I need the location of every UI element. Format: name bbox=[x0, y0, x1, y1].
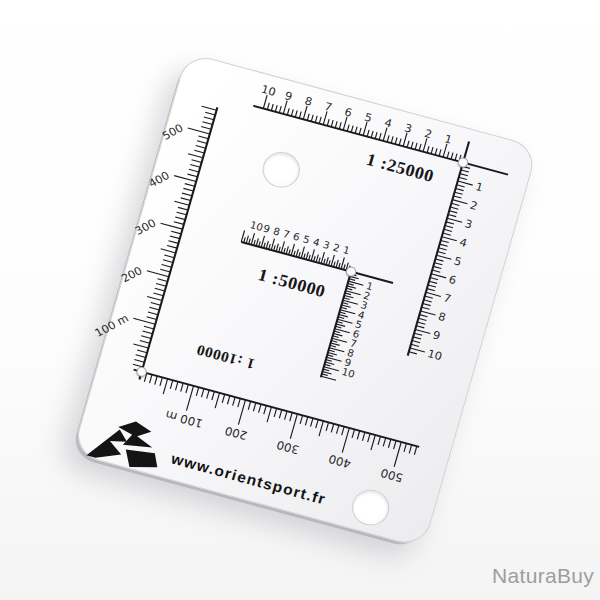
ruler-tick bbox=[421, 311, 436, 315]
ruler-tick bbox=[238, 400, 245, 425]
ruler-tick bbox=[174, 201, 189, 205]
ruler-tick bbox=[300, 415, 302, 424]
ruler-tick bbox=[415, 329, 430, 333]
ruler-tick bbox=[186, 386, 193, 411]
ruler-tick bbox=[378, 436, 380, 445]
ruler-tick bbox=[307, 114, 309, 121]
ruler-tick bbox=[279, 106, 281, 113]
ruler-tick bbox=[419, 144, 421, 151]
ruler-tick bbox=[295, 110, 297, 117]
ruler-tick bbox=[347, 125, 349, 132]
ruler-tick bbox=[161, 249, 176, 253]
tick-number: 2 bbox=[332, 242, 341, 254]
ruler-tick bbox=[137, 350, 147, 353]
tick-number: 6 bbox=[343, 106, 353, 120]
ruler-tick bbox=[387, 135, 389, 142]
ruler-tick bbox=[147, 317, 157, 320]
ruler-tick bbox=[415, 143, 417, 150]
ruler-tick bbox=[215, 393, 219, 408]
ruler-tick bbox=[352, 429, 354, 438]
ruler-tick bbox=[181, 383, 183, 392]
ruler-tick bbox=[347, 286, 356, 288]
ruler-tick bbox=[153, 293, 163, 296]
ruler-tick bbox=[167, 245, 177, 248]
ruler-tick bbox=[336, 425, 338, 434]
ruler-tick bbox=[336, 260, 338, 268]
ruler-tick bbox=[407, 141, 409, 148]
tick-number: 7 bbox=[442, 292, 452, 306]
ruler-tick bbox=[316, 255, 318, 263]
product-photo-background: 1098765432112345678910109876543211234567… bbox=[0, 0, 600, 600]
ruler-tick bbox=[451, 203, 459, 205]
ruler-tick bbox=[411, 142, 413, 149]
ruler-tick bbox=[449, 211, 457, 213]
ruler-tick bbox=[149, 307, 159, 310]
ruler-tick bbox=[394, 442, 401, 467]
ruler-tick bbox=[198, 136, 208, 139]
tick-number: 1 bbox=[443, 133, 453, 147]
ruler-tick bbox=[290, 414, 297, 439]
ruler-tick bbox=[175, 217, 185, 220]
ruler-tick bbox=[447, 152, 449, 159]
ruler-tick bbox=[202, 106, 217, 110]
ruler-tick bbox=[426, 292, 441, 296]
tick-number: 3 bbox=[403, 122, 413, 136]
ruler-tick bbox=[351, 126, 353, 133]
tick-number: 300 bbox=[275, 438, 301, 457]
ruler-tick bbox=[423, 303, 431, 305]
tick-number: 7 bbox=[323, 100, 333, 114]
ruler-tick bbox=[457, 185, 465, 187]
ruler-tick bbox=[417, 322, 425, 324]
ruler-tick bbox=[316, 420, 318, 429]
ruler-tick bbox=[444, 229, 452, 231]
ruler-tick bbox=[264, 405, 266, 414]
ruler-tick bbox=[442, 237, 457, 241]
ruler-tick bbox=[331, 120, 333, 127]
ruler-tick bbox=[339, 122, 341, 129]
ruler-tick bbox=[155, 376, 157, 385]
ruler-tick bbox=[431, 147, 433, 154]
ruler-tick bbox=[136, 355, 146, 358]
ruler-tick bbox=[267, 103, 269, 110]
ruler-tick bbox=[326, 257, 328, 265]
ruler-tick bbox=[429, 281, 437, 283]
ruler-tick bbox=[222, 394, 224, 403]
tick-number: 8 bbox=[303, 95, 313, 109]
ruler-tick bbox=[439, 149, 441, 156]
ruler-tick bbox=[367, 130, 369, 137]
ruler-tick bbox=[181, 198, 191, 201]
ruler-tick bbox=[150, 375, 152, 384]
ruler-tick bbox=[362, 432, 364, 441]
ruler-tick bbox=[319, 117, 321, 124]
tick-number: 500 bbox=[379, 466, 405, 485]
ruler-tick bbox=[133, 344, 148, 348]
ruler-tick bbox=[435, 148, 437, 155]
ruler-tick bbox=[158, 279, 168, 282]
ruler-tick bbox=[326, 422, 328, 431]
ruler-tick bbox=[207, 390, 209, 399]
ruler-tick bbox=[267, 407, 271, 422]
ruler-tick bbox=[144, 326, 154, 329]
ruler-tick bbox=[201, 127, 211, 130]
ruler-tick bbox=[174, 222, 184, 225]
ruler-tick bbox=[170, 236, 180, 239]
ruler-tick bbox=[404, 443, 406, 452]
ruler-tick bbox=[459, 177, 467, 179]
ruler-tick bbox=[151, 303, 161, 306]
ruler-tick bbox=[359, 128, 361, 135]
ruler-tick bbox=[163, 260, 173, 263]
tick-number: 500 bbox=[160, 122, 185, 143]
ruler-tick bbox=[227, 396, 229, 405]
ruler-tick bbox=[432, 270, 440, 272]
tick-number: 10 bbox=[340, 366, 356, 380]
tick-number: 3 bbox=[463, 217, 473, 231]
ruler-tick bbox=[177, 212, 187, 215]
ruler-tick bbox=[160, 269, 170, 272]
ruler-tick bbox=[183, 188, 193, 191]
ruler-tick bbox=[325, 362, 334, 364]
tick-number: 4 bbox=[458, 236, 468, 250]
ruler-tick bbox=[163, 379, 167, 394]
ruler-tick bbox=[194, 150, 204, 153]
ruler-tick bbox=[205, 112, 215, 115]
ruler-tick bbox=[156, 283, 166, 286]
ruler-tick bbox=[388, 439, 390, 448]
tick-number: 300 bbox=[133, 217, 158, 238]
ruler-tick bbox=[276, 244, 278, 252]
ruler-tick bbox=[431, 274, 446, 278]
ruler-tick bbox=[321, 376, 336, 380]
ruler-tick bbox=[306, 252, 308, 260]
ruler-tick bbox=[438, 252, 446, 254]
tick-number: 2 bbox=[423, 127, 433, 141]
ruler-tick bbox=[416, 326, 424, 328]
ruler-tick bbox=[422, 307, 430, 309]
tick-number: 10 bbox=[260, 83, 277, 99]
ruler-tick bbox=[331, 424, 333, 433]
ruler-tick bbox=[248, 401, 250, 410]
ruler-tick bbox=[133, 318, 155, 324]
ruler-tick bbox=[395, 137, 397, 144]
ruler-tick bbox=[410, 348, 425, 352]
ruler-tick bbox=[451, 153, 453, 160]
ruler-tick bbox=[433, 266, 441, 268]
ruler-tick bbox=[266, 241, 268, 249]
ruler-tick bbox=[275, 105, 277, 112]
ruler-tick bbox=[315, 116, 317, 123]
ruler-tick bbox=[440, 244, 448, 246]
tick-number: 200 bbox=[223, 424, 249, 443]
ruler-tick bbox=[344, 295, 353, 297]
ruler-tick bbox=[160, 377, 162, 386]
ruler-tick bbox=[322, 372, 331, 374]
ruler-tick bbox=[279, 410, 281, 419]
ruler-tick bbox=[335, 121, 337, 128]
ruler-tick bbox=[196, 387, 198, 396]
tick-number: 4 bbox=[312, 236, 321, 248]
tick-number: 8 bbox=[437, 310, 447, 324]
ruler-tick bbox=[246, 236, 248, 244]
ruler-tick bbox=[192, 160, 202, 163]
ruler-tick bbox=[391, 136, 393, 143]
ruler-tick bbox=[259, 404, 261, 413]
ruler-tick bbox=[155, 288, 165, 291]
ruler-tick bbox=[182, 193, 192, 196]
tick-number: 6 bbox=[292, 231, 301, 243]
scale-ruler-card: 1098765432112345678910109876543211234567… bbox=[72, 52, 539, 548]
tick-number: 5 bbox=[363, 111, 373, 125]
ruler-tick bbox=[414, 333, 422, 335]
ruler-tick bbox=[383, 438, 385, 447]
ruler-tick bbox=[452, 200, 467, 204]
ruler-tick bbox=[445, 226, 453, 228]
ruler-tick bbox=[339, 314, 348, 316]
ruler-tick bbox=[147, 296, 162, 300]
ruler-tick bbox=[311, 418, 313, 427]
tick-number: 8 bbox=[272, 225, 281, 237]
ruler-tick bbox=[256, 238, 258, 246]
naturabuy-watermark: NaturaBuy bbox=[492, 564, 594, 588]
tick-number: 7 bbox=[282, 228, 291, 240]
tick-number: 10 bbox=[426, 347, 443, 363]
ruler-tick bbox=[162, 264, 172, 267]
tick-number: 100 m bbox=[164, 408, 204, 431]
ruler-tick bbox=[439, 248, 447, 250]
ruler-tick bbox=[168, 241, 178, 244]
ruler-tick bbox=[186, 384, 188, 393]
ruler-tick bbox=[171, 231, 181, 234]
ruler-tick bbox=[203, 122, 213, 125]
ruler-tick bbox=[328, 352, 337, 354]
ruler-tick bbox=[148, 312, 158, 315]
ruler-tick bbox=[425, 296, 433, 298]
ruler-tick bbox=[430, 278, 438, 280]
ruler-tick bbox=[287, 108, 289, 115]
ruler-tick bbox=[141, 336, 151, 339]
ruler-tick bbox=[201, 389, 203, 398]
ruler-tick bbox=[212, 391, 214, 400]
ruler-tick bbox=[197, 141, 207, 144]
tick-number: 9 bbox=[431, 329, 441, 343]
ruler-tick bbox=[178, 207, 188, 210]
ruler-tick bbox=[436, 255, 451, 259]
tick-number: 200 bbox=[119, 264, 144, 285]
ruler-tick bbox=[311, 115, 313, 122]
ruler-tick bbox=[342, 427, 344, 436]
ruler-tick bbox=[291, 109, 293, 116]
ruler-tick bbox=[143, 331, 153, 334]
ruler-tick bbox=[174, 176, 196, 182]
ruler-tick bbox=[147, 271, 169, 277]
tick-number: 1 bbox=[342, 244, 351, 256]
ruler-tick bbox=[418, 318, 426, 320]
ruler-tick bbox=[233, 397, 235, 406]
ruler-tick bbox=[399, 139, 401, 146]
ruler-tick bbox=[327, 119, 329, 126]
ruler-tick bbox=[447, 218, 462, 222]
ruler-tick bbox=[441, 240, 449, 242]
ruler-tick bbox=[185, 184, 195, 187]
ruler-tick bbox=[450, 207, 458, 209]
tick-number: 3 bbox=[322, 239, 331, 251]
tick-number: 6 bbox=[447, 273, 457, 287]
ruler-tick bbox=[140, 341, 150, 344]
ruler-tick bbox=[375, 132, 377, 139]
ruler-tick bbox=[458, 181, 473, 185]
ruler-tick bbox=[379, 133, 381, 140]
ruler-tick bbox=[448, 214, 456, 216]
ruler-tick bbox=[427, 289, 435, 291]
ruler-tick bbox=[204, 117, 214, 120]
ruler-tick bbox=[371, 435, 375, 450]
ruler-tick bbox=[176, 382, 178, 391]
ruler-tick bbox=[455, 192, 463, 194]
tick-number: 4 bbox=[383, 116, 393, 130]
ruler-tick bbox=[342, 428, 349, 453]
ruler-tick bbox=[164, 255, 174, 258]
ruler-tick bbox=[286, 246, 288, 254]
ruler-tick bbox=[412, 341, 420, 343]
tick-number: 1 bbox=[474, 180, 484, 194]
ruler-tick bbox=[188, 128, 210, 134]
ruler-tick bbox=[299, 112, 301, 119]
ruler-tick bbox=[414, 446, 416, 455]
ruler-tick bbox=[296, 249, 298, 257]
tick-number: 400 bbox=[146, 169, 171, 190]
tick-number: 5 bbox=[302, 234, 311, 246]
ruler-tick bbox=[134, 360, 144, 363]
tick-number: 5 bbox=[453, 255, 463, 269]
ruler-tick bbox=[428, 285, 436, 287]
ruler-tick bbox=[357, 431, 359, 440]
ruler-tick bbox=[285, 411, 287, 420]
ruler-tick bbox=[331, 343, 340, 345]
ruler-tick bbox=[170, 380, 172, 389]
ruler-tick bbox=[190, 165, 200, 168]
ruler-tick bbox=[424, 300, 432, 302]
ruler-tick bbox=[411, 344, 419, 346]
ruler-tick bbox=[139, 107, 217, 379]
ruler-tick bbox=[336, 324, 345, 326]
ruler-tick bbox=[461, 170, 469, 172]
tick-number: 400 bbox=[327, 452, 353, 471]
ruler-tick bbox=[161, 223, 183, 229]
ruler-tick bbox=[188, 174, 198, 177]
ruler-tick bbox=[419, 315, 427, 317]
ruler-tick bbox=[368, 434, 370, 443]
ruler-tick bbox=[371, 131, 373, 138]
ruler-tick bbox=[238, 398, 240, 407]
tick-number: 100 m bbox=[93, 312, 131, 340]
ruler-tick bbox=[290, 413, 292, 422]
ruler-tick bbox=[460, 174, 468, 176]
ruler-tick bbox=[305, 417, 307, 426]
ruler-tick bbox=[333, 333, 342, 335]
ruler-tick bbox=[188, 154, 203, 158]
tick-number: 9 bbox=[283, 89, 293, 103]
ruler-tick bbox=[274, 408, 276, 417]
ruler-tick bbox=[196, 146, 206, 149]
ruler-tick bbox=[453, 196, 461, 198]
ruler-tick bbox=[355, 127, 357, 134]
ruler-tick bbox=[446, 222, 454, 224]
ruler-tick bbox=[413, 337, 421, 339]
ruler-tick bbox=[342, 305, 351, 307]
ruler-tick bbox=[271, 104, 273, 111]
ruler-tick bbox=[456, 188, 464, 190]
ruler-tick bbox=[394, 441, 396, 450]
ruler-tick bbox=[409, 352, 417, 354]
ruler-tick bbox=[253, 403, 255, 412]
ruler-tick bbox=[409, 445, 411, 454]
ruler-tick bbox=[443, 233, 451, 235]
ruler-markings: 1098765432112345678910109876543211234567… bbox=[73, 53, 537, 547]
ruler-tick bbox=[455, 154, 457, 161]
ruler-tick bbox=[189, 169, 199, 172]
tick-number: 9 bbox=[262, 223, 271, 235]
ruler-tick bbox=[427, 146, 429, 153]
ruler-tick bbox=[434, 263, 442, 265]
ruler-tick bbox=[435, 259, 443, 261]
ruler-tick bbox=[319, 421, 323, 436]
tick-number: 2 bbox=[469, 199, 479, 213]
